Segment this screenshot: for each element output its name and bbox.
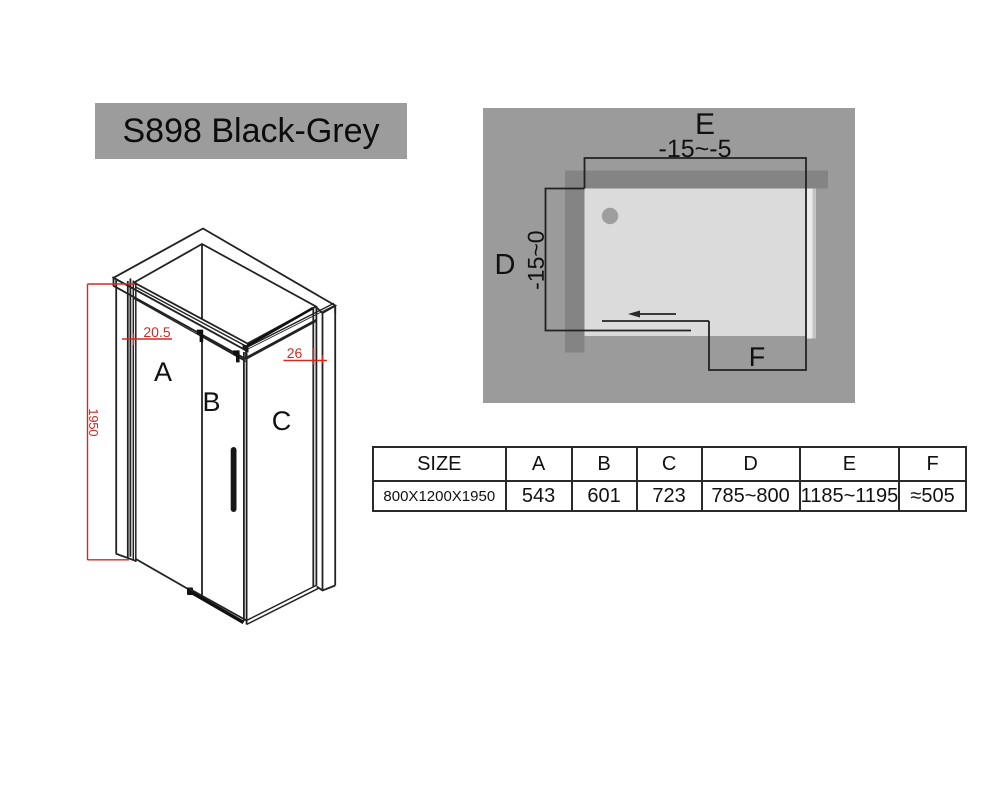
svg-text:26: 26 [287, 345, 303, 361]
svg-text:C: C [272, 406, 292, 436]
svg-text:-15~-5: -15~-5 [659, 135, 732, 163]
svg-text:F: F [749, 342, 766, 372]
svg-text:B: B [202, 387, 220, 417]
svg-text:20.5: 20.5 [143, 324, 170, 340]
svg-text:1950: 1950 [86, 408, 101, 436]
svg-text:-15~0: -15~0 [523, 230, 549, 289]
svg-text:A: A [154, 357, 172, 387]
svg-text:D: D [495, 249, 516, 281]
